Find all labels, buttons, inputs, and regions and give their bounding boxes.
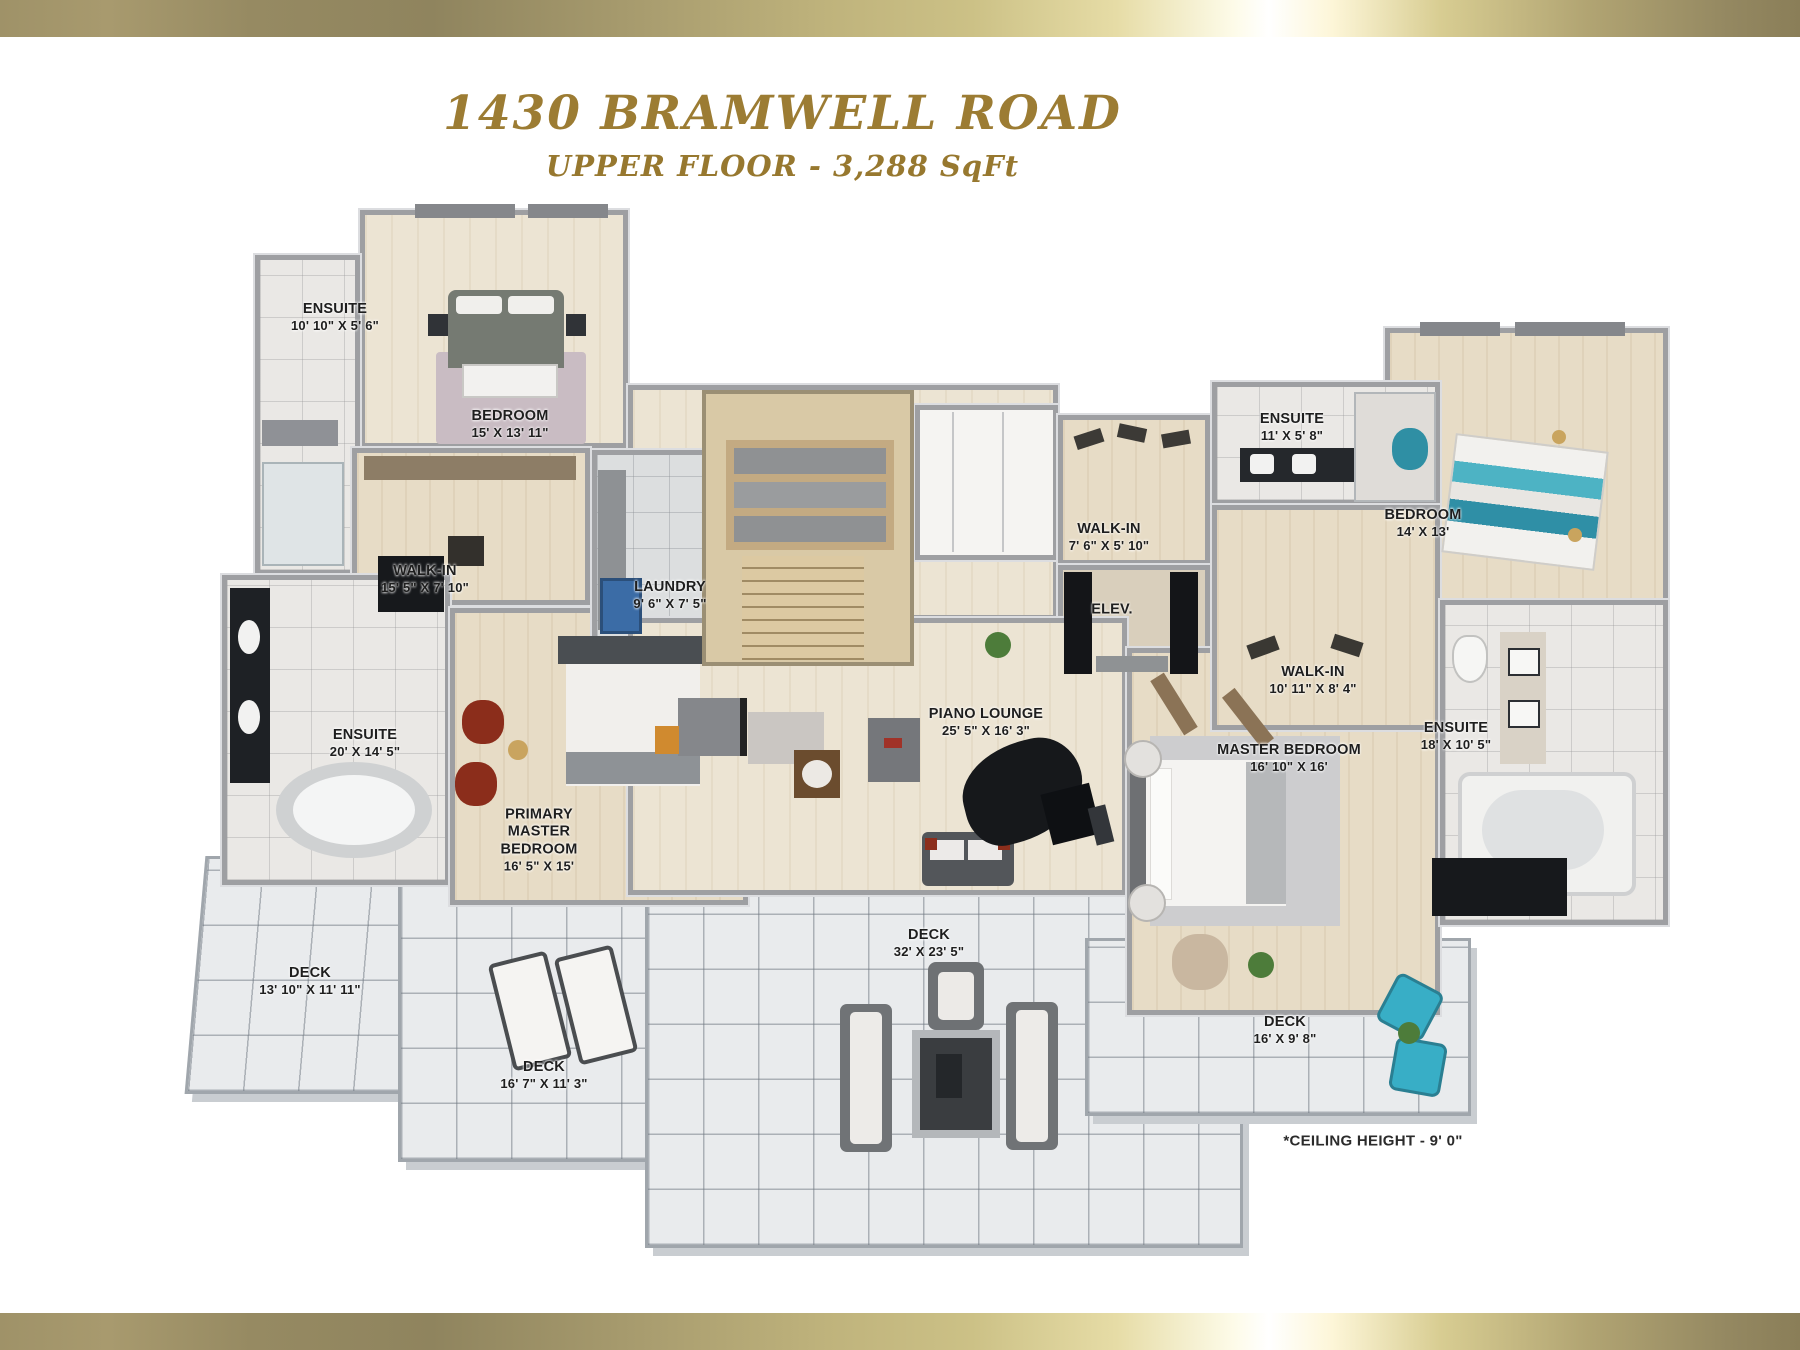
stairs: [742, 556, 864, 660]
room-dimensions: 20' X 14' 5": [330, 744, 400, 761]
room-name: ENSUITE: [291, 301, 379, 318]
armchair: [1172, 934, 1228, 990]
teal-deck-chair: [1388, 1036, 1449, 1098]
room-label-deck-3: DECK32' X 23' 5": [894, 927, 964, 961]
room-name: ENSUITE: [1260, 411, 1324, 428]
outdoor-sofa-cushion: [1016, 1010, 1048, 1142]
potted-plant: [985, 632, 1011, 658]
teal-armchair: [1392, 428, 1428, 470]
room-dimensions: 16' 5" X 15': [472, 859, 607, 876]
room-name: WALK-IN: [1269, 664, 1356, 681]
sink: [1292, 454, 1316, 474]
room-dimensions: 16' 7" X 11' 3": [500, 1076, 587, 1093]
room-label-walk-in-2: WALK-IN7' 6" X 5' 10": [1069, 521, 1150, 555]
shelf-panel: [734, 448, 886, 474]
room-label-master-bedroom: MASTER BEDROOM16' 10" X 16': [1217, 742, 1361, 776]
room-name: WALK-IN: [381, 563, 469, 580]
room-label-deck-2: DECK16' 7" X 11' 3": [500, 1059, 587, 1093]
shelf-panel: [734, 516, 886, 542]
table-lamp: [1552, 430, 1566, 444]
room-dimensions: 15' 5" X 7' 10": [381, 580, 469, 597]
room-dimensions: 16' X 9' 8": [1254, 1031, 1317, 1048]
top-gold-bar: [0, 0, 1800, 37]
room-name: ENSUITE: [1421, 720, 1491, 737]
bed-pillow: [1150, 768, 1172, 900]
outdoor-armchair-cushion: [938, 972, 974, 1020]
bed-blanket: [1246, 762, 1286, 904]
round-nightstand: [1124, 740, 1162, 778]
closet-door-line: [952, 412, 954, 552]
bed-foot-bench: [462, 364, 558, 398]
room-dimensions: 11' X 5' 8": [1260, 428, 1324, 445]
skylight-opening: [1432, 858, 1567, 916]
bed-pillow: [508, 296, 554, 314]
elevator-threshold: [1096, 656, 1168, 672]
shower: [262, 462, 344, 566]
room-label-laundry: LAUNDRY9' 6" X 7' 5": [633, 579, 706, 613]
closet-door-line: [1002, 412, 1004, 552]
room-label-bedroom-2: BEDROOM14' X 13': [1384, 507, 1461, 541]
room-label-walk-in-1: WALK-IN15' 5" X 7' 10": [381, 563, 469, 597]
room-label-elevator: ELEV.: [1091, 601, 1133, 618]
room-name: DECK: [894, 927, 964, 944]
room-dimensions: 16' 10" X 16': [1217, 759, 1361, 776]
potted-plant: [1398, 1022, 1420, 1044]
bed-headboard: [558, 636, 708, 664]
round-nightstand: [1128, 884, 1166, 922]
room-label-walk-in-3: WALK-IN10' 11" X 8' 4": [1269, 664, 1356, 698]
elevator-panel: [1170, 572, 1198, 674]
armchair: [455, 762, 497, 806]
sink: [238, 620, 260, 654]
room-dimensions: 9' 6" X 7' 5": [633, 596, 706, 613]
shelf-panel: [734, 482, 886, 508]
floor-plan-page: 1430 BRAMWELL ROAD UPPER FLOOR - 3,288 S…: [0, 0, 1800, 1350]
vanity-counter: [230, 588, 270, 783]
sink: [1508, 648, 1540, 676]
room-name: WALK-IN: [1069, 521, 1150, 538]
window: [415, 204, 515, 218]
room-label-piano-lounge: PIANO LOUNGE25' 5" X 16' 3": [929, 706, 1043, 740]
page-title: 1430 BRAMWELL ROAD: [0, 86, 1565, 141]
room-dimensions: 25' 5" X 16' 3": [929, 723, 1043, 740]
header: 1430 BRAMWELL ROAD UPPER FLOOR - 3,288 S…: [0, 86, 1565, 183]
room-label-primary-master-bedroom: PRIMARY MASTER BEDROOM16' 5" X 15': [472, 806, 607, 875]
soaking-tub-inner: [293, 775, 415, 845]
room-dimensions: 15' X 13' 11": [471, 425, 548, 442]
room-dimensions: 13' 10" X 11' 11": [259, 982, 360, 999]
room-dimensions: 7' 6" X 5' 10": [1069, 538, 1150, 555]
room-label-ensuite-3: ENSUITE11' X 5' 8": [1260, 411, 1324, 445]
room-name: DECK: [1254, 1014, 1317, 1031]
window: [1515, 322, 1625, 336]
room-label-deck-4: DECK16' X 9' 8": [1254, 1014, 1317, 1048]
room-label-ensuite-1: ENSUITE10' 10" X 5' 6": [291, 301, 379, 335]
room-name: PRIMARY MASTER BEDROOM: [472, 806, 607, 858]
room-dimensions: 32' X 23' 5": [894, 944, 964, 961]
room-name: PIANO LOUNGE: [929, 706, 1043, 723]
room-label-ensuite-4: ENSUITE18' X 10' 5": [1421, 720, 1491, 754]
bed: [1441, 433, 1608, 571]
outdoor-sofa-cushion: [850, 1012, 882, 1144]
room-dimensions: 18' X 10' 5": [1421, 737, 1491, 754]
bottom-gold-bar: [0, 1313, 1800, 1350]
room-name: MASTER BEDROOM: [1217, 742, 1361, 759]
closet-island: [448, 536, 484, 566]
potted-plant: [1248, 952, 1274, 978]
room-name: DECK: [259, 965, 360, 982]
red-books: [884, 738, 902, 748]
sink: [238, 700, 260, 734]
bookshelf-console: [868, 718, 920, 782]
toilet: [1452, 635, 1488, 683]
side-table: [508, 740, 528, 760]
room-name: DECK: [500, 1059, 587, 1076]
room-dimensions: 10' 10" X 5' 6": [291, 318, 379, 335]
closet-shelving: [364, 456, 576, 480]
room-name: BEDROOM: [1384, 507, 1461, 524]
room-label-ensuite-2: ENSUITE20' X 14' 5": [330, 727, 400, 761]
window: [528, 204, 608, 218]
nightstand: [566, 314, 586, 336]
ceiling-height-note: *CEILING HEIGHT - 9' 0": [1283, 1133, 1462, 1150]
room-name: BEDROOM: [471, 408, 548, 425]
sink: [1250, 454, 1274, 474]
bed-pillow: [456, 296, 502, 314]
elevator-panel: [1064, 572, 1092, 674]
vanity-counter: [262, 420, 338, 446]
room-name: ENSUITE: [330, 727, 400, 744]
bed-throw: [566, 752, 700, 784]
room-name: LAUNDRY: [633, 579, 706, 596]
red-pillow: [925, 838, 937, 850]
room-dimensions: 10' 11" X 8' 4": [1269, 681, 1356, 698]
room-label-deck-1: DECK13' 10" X 11' 11": [259, 965, 360, 999]
table-lamp: [1568, 528, 1582, 542]
room-dimensions: 14' X 13': [1384, 524, 1461, 541]
nightstand: [428, 314, 448, 336]
media-console: [678, 698, 747, 756]
armchair: [462, 700, 504, 744]
room-name: ELEV.: [1091, 601, 1133, 618]
orange-stool: [655, 726, 679, 754]
window: [1420, 322, 1500, 336]
sink: [1508, 700, 1540, 728]
fire-table-inner: [936, 1054, 962, 1098]
room-hall-closets: [915, 405, 1058, 560]
coffee-table-tray: [802, 760, 832, 788]
page-subtitle: UPPER FLOOR - 3,288 SqFt: [0, 149, 1565, 183]
room-label-bedroom-1: BEDROOM15' X 13' 11": [471, 408, 548, 442]
